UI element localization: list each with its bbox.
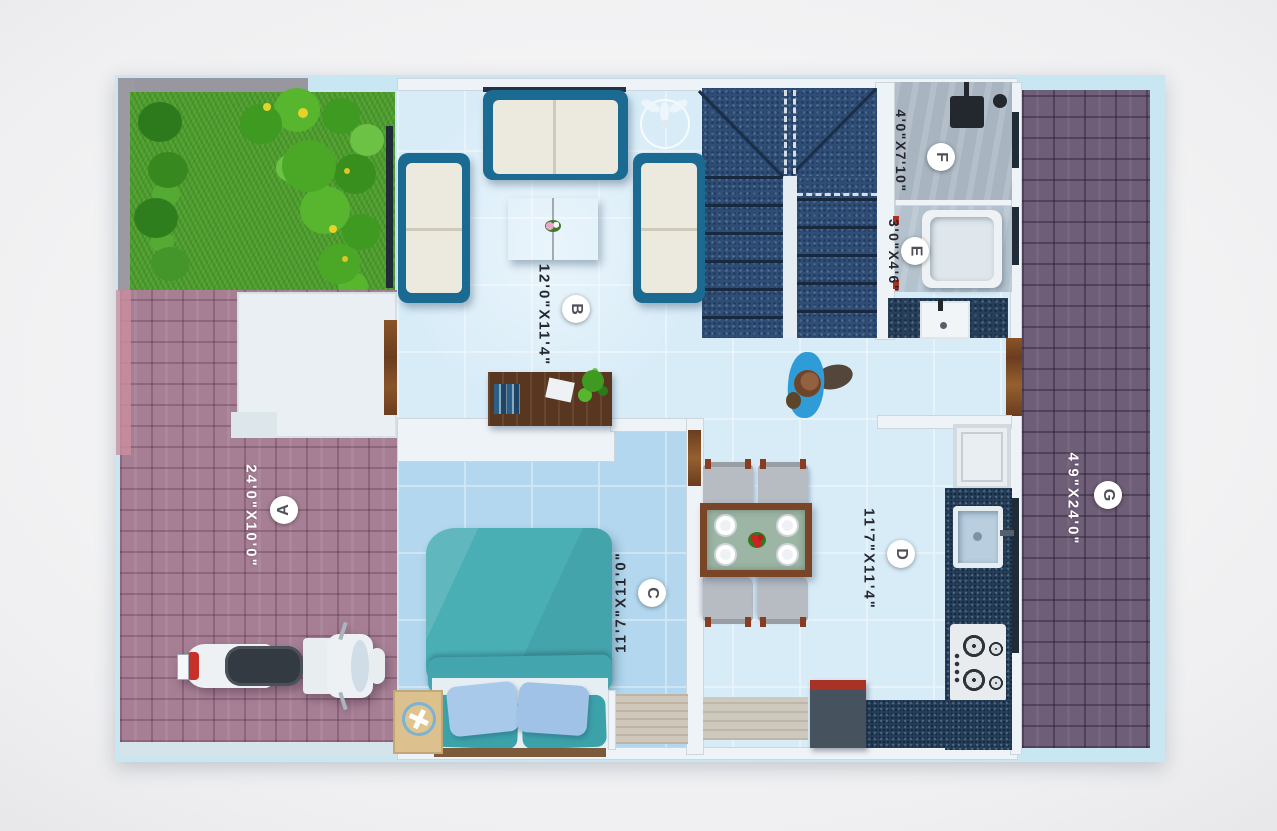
room-dimension-d: 11'7"X11'4" [861, 508, 878, 610]
kitchen-cabinet [810, 680, 866, 748]
fan-blade [660, 102, 669, 122]
room-dimension-g: 4'9"X24'0" [1065, 452, 1082, 545]
kitchen-counter-bottom [866, 700, 1012, 748]
stair-guide-dashes [784, 90, 787, 174]
bathtub-inner [930, 217, 994, 281]
ceiling-fan-icon [640, 99, 690, 149]
kitchen-window [1012, 498, 1019, 653]
verandah-door [1006, 338, 1022, 416]
kitchen-cabinet-top [810, 680, 866, 690]
faucet-icon [1000, 530, 1014, 536]
tree-flowers [298, 108, 308, 118]
porch-step [231, 412, 277, 438]
scooter-seat [225, 646, 303, 686]
wardrobe [616, 694, 688, 744]
paver-light-strip [116, 290, 131, 455]
books [494, 384, 520, 414]
plate [714, 514, 737, 537]
staircase-landing [702, 88, 877, 176]
room-dimension-e: 3'0"X4'6" [886, 219, 902, 293]
room-letter: D [892, 548, 910, 560]
room-letter: B [567, 303, 585, 315]
drain-icon [940, 322, 947, 329]
room-letter: E [906, 246, 924, 257]
room-badge-e[interactable]: E [901, 237, 929, 265]
refrigerator [953, 424, 1011, 490]
dining-chair [703, 462, 753, 509]
pillow [446, 680, 521, 737]
toilet-window [1011, 207, 1019, 265]
scooter-windshield [351, 640, 369, 692]
dining-chair [703, 577, 753, 624]
bed-headboard [434, 748, 606, 757]
room-dimension-b: 12'0"X11'4" [536, 264, 553, 367]
person-head [794, 370, 821, 397]
dining-chair [758, 462, 808, 509]
room-badge-b[interactable]: B [562, 295, 590, 323]
stair-divider [783, 176, 797, 338]
faucet-icon [938, 299, 943, 311]
wash-basin [920, 301, 970, 339]
table-flower [545, 220, 561, 232]
plate [776, 514, 799, 537]
stair-guide-dashes [793, 90, 796, 174]
gas-stove [950, 624, 1006, 702]
garden-shrubs [138, 102, 182, 142]
scooter [175, 622, 385, 704]
room-badge-a[interactable]: A [270, 496, 298, 524]
room-badge-g[interactable]: G [1094, 481, 1122, 509]
dining-sideboard [703, 697, 808, 740]
stair-flight-left [702, 176, 783, 338]
stair-flight-right [797, 198, 877, 338]
dining-chair [758, 577, 808, 624]
living-room-window [386, 126, 393, 288]
room-badge-f[interactable]: F [927, 143, 955, 171]
bathroom-window [1011, 112, 1019, 168]
wardrobe-divider [608, 690, 616, 750]
drain-icon [993, 94, 1007, 108]
room-badge-d[interactable]: D [887, 540, 915, 568]
shower-icon [950, 96, 984, 128]
scooter-front-wheel [369, 648, 385, 684]
room-dimension-f: 4'0"X7'10" [893, 109, 909, 192]
entrance-door [384, 320, 398, 415]
room-letter: F [932, 152, 950, 162]
bedroom-door [688, 430, 701, 486]
room-dimension-a: 24'0"X10'0" [243, 464, 260, 567]
floor-plan-canvas: A 24'0"X10'0" B 12'0"X11'4" C 11'7"X11'0… [0, 0, 1277, 831]
stair-guide-dashes [797, 193, 877, 196]
room-dimension-c: 11'7"X11'0" [613, 551, 630, 653]
paver-apron [120, 742, 397, 757]
drain-icon [973, 532, 982, 541]
flower-centerpiece [748, 532, 766, 548]
sofa-cushions [406, 163, 462, 293]
plate [714, 543, 737, 566]
potted-plant [582, 370, 604, 392]
plate [776, 543, 799, 566]
room-badge-c[interactable]: C [638, 579, 666, 607]
garden-tree [282, 140, 336, 192]
fan-hub [661, 120, 669, 128]
pillow [516, 682, 589, 737]
sofa-cushions [641, 163, 697, 293]
sofa-cushions [493, 100, 618, 174]
room-letter: G [1099, 489, 1117, 501]
room-letter: A [275, 504, 293, 516]
scooter-license-plate [177, 654, 189, 680]
verandah-pavers-g [1022, 90, 1150, 748]
room-letter: C [643, 587, 661, 599]
